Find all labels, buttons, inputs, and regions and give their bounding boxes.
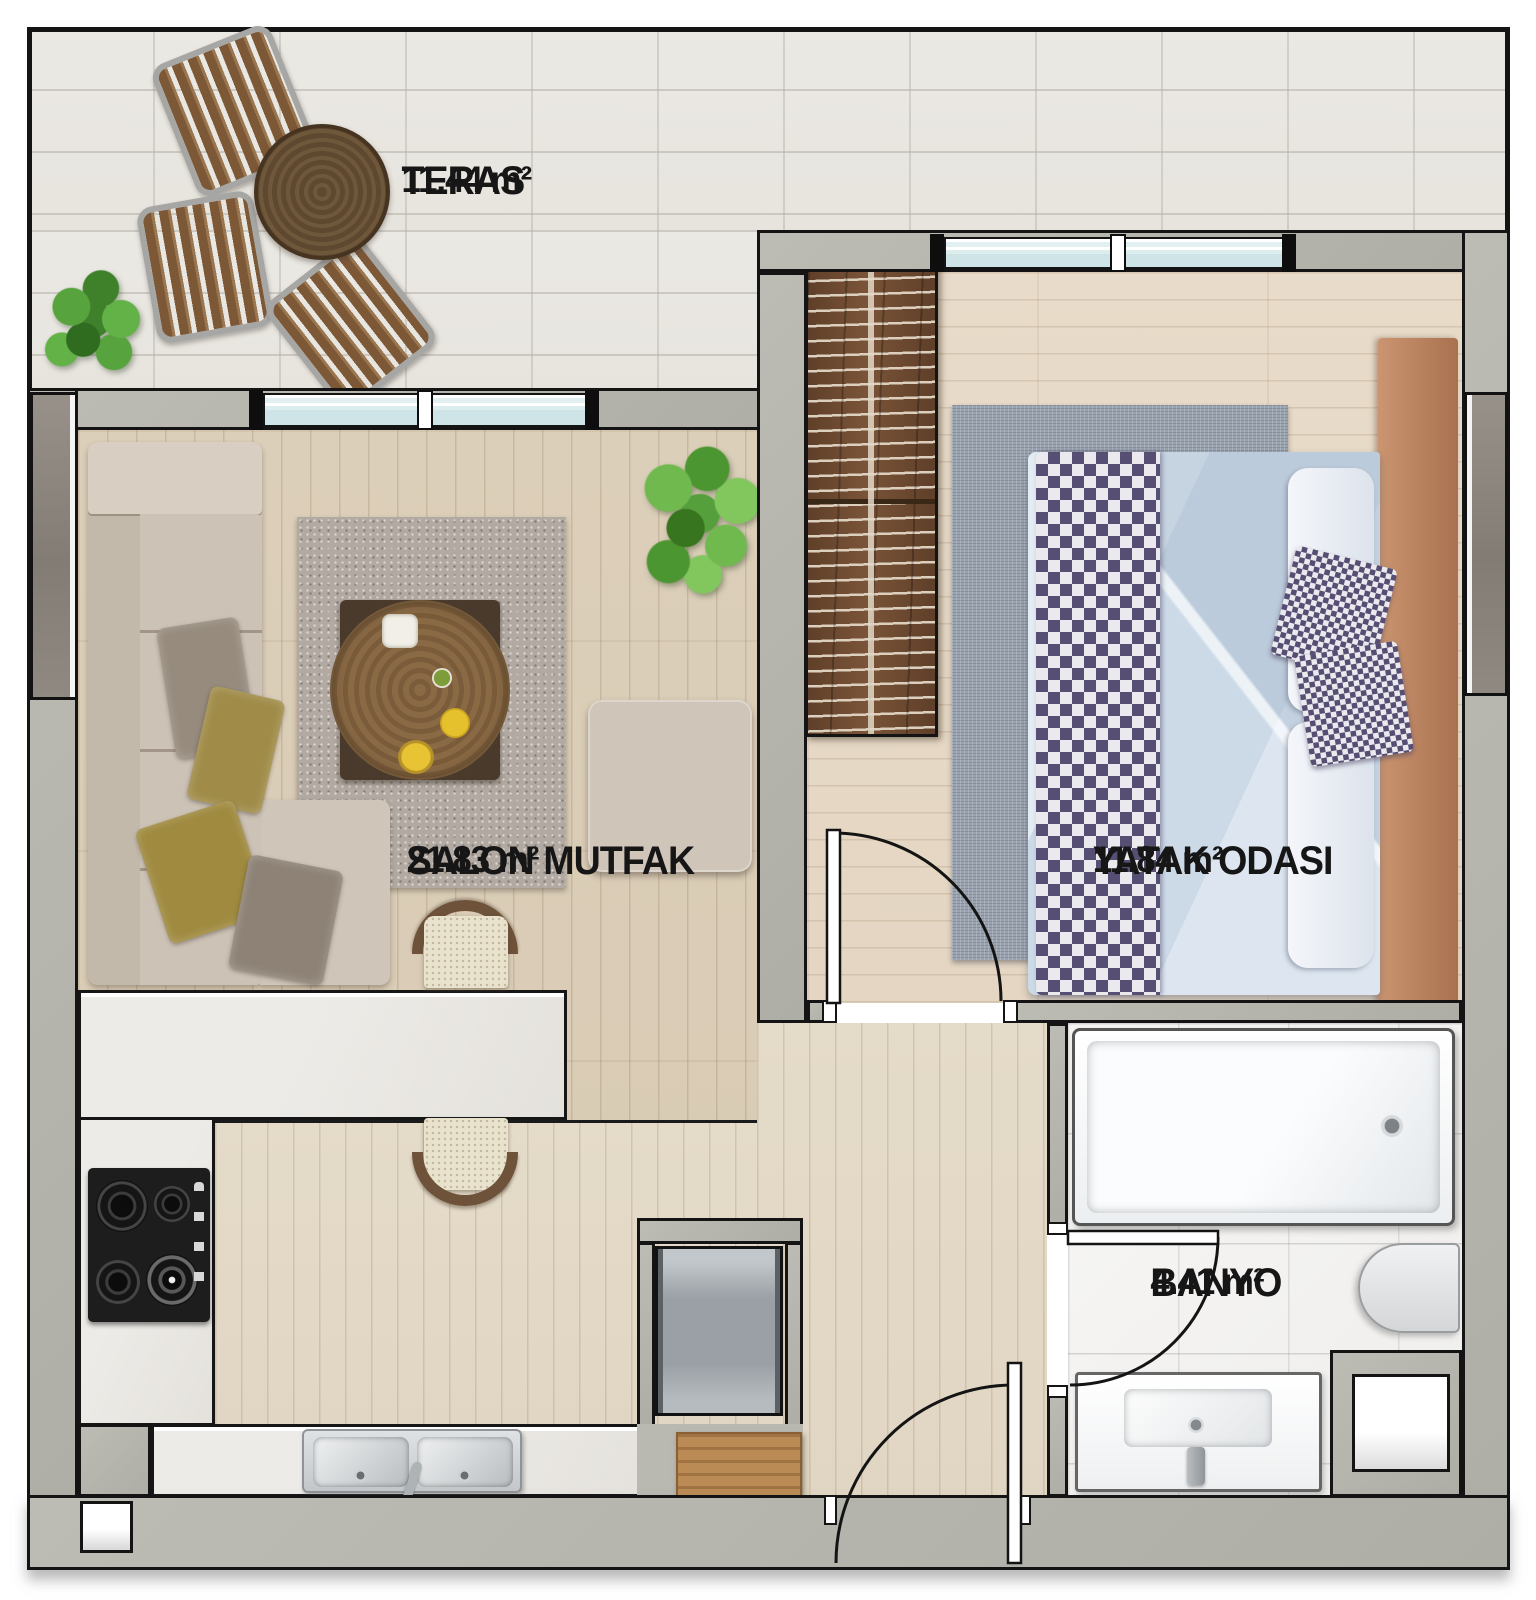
- terrace-border-left: [27, 27, 32, 388]
- alcove-wall-left: [637, 1242, 655, 1427]
- wall-bedroom-left: [757, 272, 807, 1023]
- bedroom-door-jamb-left: [822, 1000, 837, 1023]
- living-window-mullion: [417, 390, 433, 430]
- shaft-opening: [1352, 1374, 1450, 1472]
- appliance: [655, 1246, 783, 1416]
- burner-wok: [146, 1254, 198, 1306]
- bathroom-door-jamb-bottom: [1047, 1385, 1068, 1398]
- bedroom-area: 11.84 m²: [1093, 840, 1223, 879]
- wall-bathroom-left-lower: [1047, 1387, 1068, 1497]
- terrace-area: 11.44 m²: [402, 160, 532, 199]
- vanity-faucet: [1187, 1447, 1205, 1485]
- sink-drain-right: [458, 1469, 471, 1482]
- alcove-wall-right: [785, 1242, 803, 1427]
- entry-door-jamb-left: [824, 1495, 837, 1525]
- stove: [88, 1168, 210, 1322]
- bathroom-area: 4.41 m²: [1150, 1262, 1263, 1301]
- stove-knobs: [194, 1182, 204, 1300]
- wall-bottom: [27, 1495, 1510, 1570]
- terrace-chair-2: [135, 189, 275, 345]
- burner-large: [96, 1180, 148, 1232]
- table-bowl-green: [432, 668, 452, 688]
- burner-medium: [96, 1260, 140, 1304]
- bathtub-drain: [1381, 1115, 1403, 1137]
- bedroom-window-mullion: [1110, 234, 1126, 272]
- wall-bathroom-left-upper: [1047, 1023, 1068, 1233]
- wall-bedroom-bottom-right: [1003, 1000, 1462, 1023]
- living-room-area: 21.83 m²: [407, 840, 539, 879]
- bed-cushion-2: [1294, 641, 1414, 768]
- wall-shaft-bottom-left: [80, 1501, 133, 1553]
- bathtub: [1072, 1028, 1455, 1226]
- wall-step-bottom-left: [78, 1424, 151, 1497]
- table-bowl-fruit: [398, 740, 434, 774]
- burner-small: [154, 1186, 190, 1222]
- living-window-post-right: [585, 390, 599, 430]
- bedroom-window-post-left: [930, 234, 944, 272]
- dining-chair-top-seat: [424, 916, 508, 988]
- bathroom-door-jamb-top: [1047, 1222, 1068, 1235]
- entry-door-jamb-right: [1018, 1495, 1031, 1525]
- terrace-border-right: [1505, 27, 1510, 230]
- vanity-sink: [1075, 1372, 1322, 1492]
- left-wall-window-panel: [30, 392, 78, 700]
- living-plant: [628, 440, 772, 600]
- bedroom-window-pane-2: [1124, 237, 1284, 269]
- kitchen-sink: [302, 1429, 522, 1493]
- bedroom-window-post-right: [1282, 234, 1296, 272]
- toilet: [1358, 1243, 1460, 1333]
- vanity-drain: [1188, 1417, 1204, 1433]
- kitchen-counter-peninsula: [78, 990, 567, 1120]
- bed-blanket-checkered: [1036, 452, 1160, 995]
- table-plate: [382, 614, 418, 648]
- living-window-post-left: [249, 390, 263, 430]
- bedroom-door-jamb-right: [1003, 1000, 1018, 1023]
- table-bowl-lemons: [440, 708, 470, 738]
- sink-drain-left: [354, 1469, 367, 1482]
- wardrobe: [805, 262, 938, 737]
- terrace-table: [254, 124, 390, 260]
- terrace-plant: [36, 264, 154, 386]
- bedroom-window-pane-1: [944, 237, 1112, 269]
- right-wall-window-panel: [1464, 392, 1508, 696]
- sofa-armrest: [88, 442, 262, 514]
- floor-plan: TERAS 11.44 m²: [0, 0, 1536, 1600]
- living-window-pane-1: [263, 393, 420, 427]
- living-window-pane-2: [431, 393, 587, 427]
- alcove-wall-top: [637, 1218, 803, 1244]
- wardrobe-rail: [868, 265, 874, 734]
